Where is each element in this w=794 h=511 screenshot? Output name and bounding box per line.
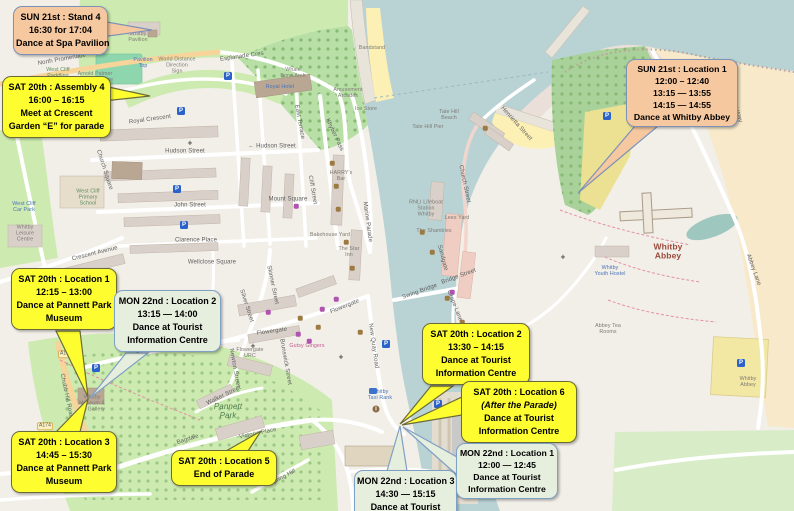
callout-line: Museum bbox=[14, 312, 114, 325]
callout-line: Information Centre bbox=[117, 334, 218, 347]
callout-line: Dance at Spa Pavilion bbox=[16, 37, 105, 50]
callout-line: 13:15 — 13:55 bbox=[629, 87, 735, 99]
callout-line: 16:00 – 16:15 bbox=[5, 94, 108, 107]
callout-line: 16:30 for 17:04 bbox=[16, 24, 105, 37]
callout-line: End of Parade bbox=[174, 468, 274, 481]
callout-line: Dance at Tourist bbox=[357, 501, 454, 511]
callout-line: Museum bbox=[14, 475, 114, 488]
callout-line: MON 22nd : Location 2 bbox=[117, 295, 218, 308]
callout-line: MON 22nd : Location 1 bbox=[459, 447, 555, 459]
callout-line: SAT 20th : Location 1 bbox=[14, 273, 114, 286]
callout-line: Meet at Crescent bbox=[5, 107, 108, 120]
callout-line: SAT 20th : Location 2 bbox=[425, 328, 527, 341]
callout-line: Dance at Whitby Abbey bbox=[629, 111, 735, 123]
callout-line: 14:45 – 15:30 bbox=[14, 449, 114, 462]
callout-line: Dance at Tourist bbox=[464, 412, 574, 425]
callout-line: Dance at Tourist bbox=[117, 321, 218, 334]
callout-line: Information Centre bbox=[425, 367, 527, 380]
annotated-map-image: North PromenadeEsplanade CresWhale Bone … bbox=[0, 0, 794, 511]
callout-line: Dance at Pannett Park bbox=[14, 462, 114, 475]
callout-line: Dance at Tourist bbox=[425, 354, 527, 367]
callout-sat20-location1: SAT 20th : Location 1 12:15 – 13:00 Danc… bbox=[11, 268, 117, 330]
bottom-right-green bbox=[612, 430, 794, 511]
callout-sat20-location3: SAT 20th : Location 3 14:45 – 15:30 Danc… bbox=[11, 431, 117, 493]
callout-sat20-location2: SAT 20th : Location 2 13:30 – 14:15 Danc… bbox=[422, 323, 530, 385]
callout-line: 12:00 — 12:45 bbox=[459, 459, 555, 471]
callout-line: 13:15 — 14:00 bbox=[117, 308, 218, 321]
callout-mon22-location1: MON 22nd : Location 1 12:00 — 12:45 Danc… bbox=[456, 443, 558, 499]
callout-line: SUN 21st : Stand 4 bbox=[16, 11, 105, 24]
callout-sun21-stand4: SUN 21st : Stand 4 16:30 for 17:04 Dance… bbox=[13, 6, 108, 55]
callout-line: SUN 21st : Location 1 bbox=[629, 63, 735, 75]
callout-line: 12:15 – 13:00 bbox=[14, 286, 114, 299]
callout-line: SAT 20th : Location 6 bbox=[464, 386, 574, 399]
callout-line: Dance at Tourist bbox=[459, 471, 555, 483]
callout-sun21-location1: SUN 21st : Location 1 12:00 – 12:40 13:1… bbox=[626, 59, 738, 127]
callout-line: SAT 20th : Assembly 4 bbox=[5, 81, 108, 94]
callout-line: Dance at Pannett Park bbox=[14, 299, 114, 312]
callout-line: 14:30 — 15:15 bbox=[357, 488, 454, 501]
callout-line: 13:30 – 14:15 bbox=[425, 341, 527, 354]
callout-line: SAT 20th : Location 5 bbox=[174, 455, 274, 468]
callout-sat20-assembly4: SAT 20th : Assembly 4 16:00 – 16:15 Meet… bbox=[2, 76, 111, 138]
callout-mon22-location3: MON 22nd : Location 3 14:30 — 15:15 Danc… bbox=[354, 470, 457, 511]
callout-line: Information Centre bbox=[459, 483, 555, 495]
callout-line: Information Centre bbox=[464, 425, 574, 438]
callout-line: 12:00 – 12:40 bbox=[629, 75, 735, 87]
callout-line: (After the Parade) bbox=[464, 399, 574, 412]
callout-line: Garden “E” for parade bbox=[5, 120, 108, 133]
callout-line: SAT 20th : Location 3 bbox=[14, 436, 114, 449]
callout-line: MON 22nd : Location 3 bbox=[357, 475, 454, 488]
callout-sat20-location6: SAT 20th : Location 6 (After the Parade)… bbox=[461, 381, 577, 443]
callout-sat20-location5: SAT 20th : Location 5 End of Parade bbox=[171, 450, 277, 486]
callout-line: 14:15 — 14:55 bbox=[629, 99, 735, 111]
callout-mon22-location2: MON 22nd : Location 2 13:15 — 14:00 Danc… bbox=[114, 290, 221, 352]
